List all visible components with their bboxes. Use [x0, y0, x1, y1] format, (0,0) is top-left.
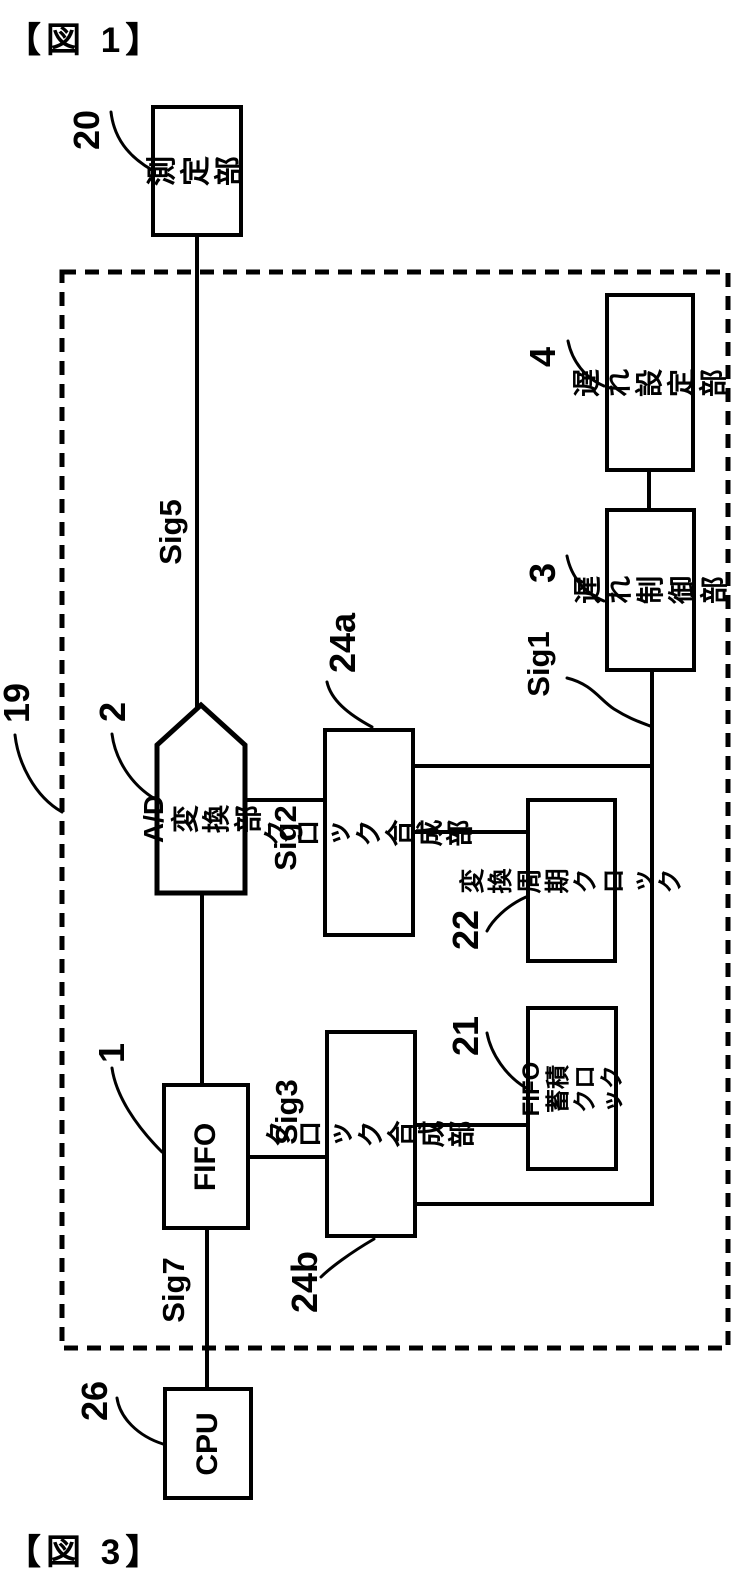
leader-ref-24a: [327, 682, 372, 727]
block-clock-synth-b: クロック 合成部: [325, 1030, 417, 1238]
block-conversion-period-clock: 変換周期 クロック: [526, 798, 617, 963]
block-clock-synth-a: クロック 合成部: [323, 728, 415, 937]
ref-label-24a: 24a: [322, 613, 364, 673]
block-delay-setting-label: 遅れ 設定部: [571, 362, 729, 403]
block-fifo: FIFO: [162, 1083, 250, 1230]
ref-label-3: 3: [522, 563, 564, 583]
block-delay-setting: 遅れ 設定部: [605, 293, 695, 472]
block-conversion-period-clock-label: 変換周期 クロック: [459, 860, 685, 902]
block-delay-control: 遅れ 制御部: [605, 508, 696, 672]
ref-label-21: 21: [445, 1016, 487, 1056]
leader-ref-19: [15, 735, 62, 812]
patent-figure-page: 【図 1】 【図 3】 測定部 A/D 変換部 FIFO CPU クロック 合成…: [0, 0, 740, 1578]
figure-title-bottom: 【図 3】: [6, 1524, 165, 1575]
leader-ref-26: [117, 1398, 163, 1444]
block-cpu: CPU: [163, 1387, 253, 1500]
leader-ref-24b: [321, 1239, 374, 1277]
block-fifo-storage-clock: FIFO蓄積 クロック: [526, 1006, 618, 1171]
block-fifo-storage-clock-label: FIFO蓄積 クロック: [518, 1061, 626, 1116]
ref-label-19: 19: [0, 683, 38, 723]
block-measurement-label: 測定部: [146, 150, 248, 192]
ref-label-24b: 24b: [284, 1251, 326, 1313]
ref-label-4: 4: [522, 347, 564, 367]
block-measurement: 測定部: [151, 105, 243, 237]
leader-ref-1: [112, 1068, 162, 1152]
block-cpu-label: CPU: [191, 1412, 225, 1475]
leader-ref-22: [487, 897, 526, 931]
leader-ref-2: [112, 734, 155, 799]
block-delay-control-label: 遅れ 制御部: [571, 569, 729, 611]
ref-label-1: 1: [91, 1043, 133, 1063]
block-ad-converter-label: A/D 変換部: [138, 795, 265, 843]
leader-sig1: [567, 678, 650, 726]
signal-label-sig1: Sig1: [521, 631, 557, 696]
block-ad-converter: A/D 変換部: [157, 745, 245, 893]
ref-label-20: 20: [66, 110, 108, 150]
signal-label-sig5: Sig5: [153, 499, 189, 564]
signal-label-sig2: Sig2: [268, 805, 304, 870]
block-fifo-label: FIFO: [189, 1122, 223, 1190]
signal-label-sig7: Sig7: [156, 1257, 192, 1322]
ref-label-2: 2: [92, 702, 134, 722]
ref-label-26: 26: [74, 1381, 116, 1421]
figure-title-top: 【図 1】: [6, 12, 165, 63]
ref-label-22: 22: [445, 910, 487, 950]
signal-label-sig3: Sig3: [269, 1079, 305, 1144]
